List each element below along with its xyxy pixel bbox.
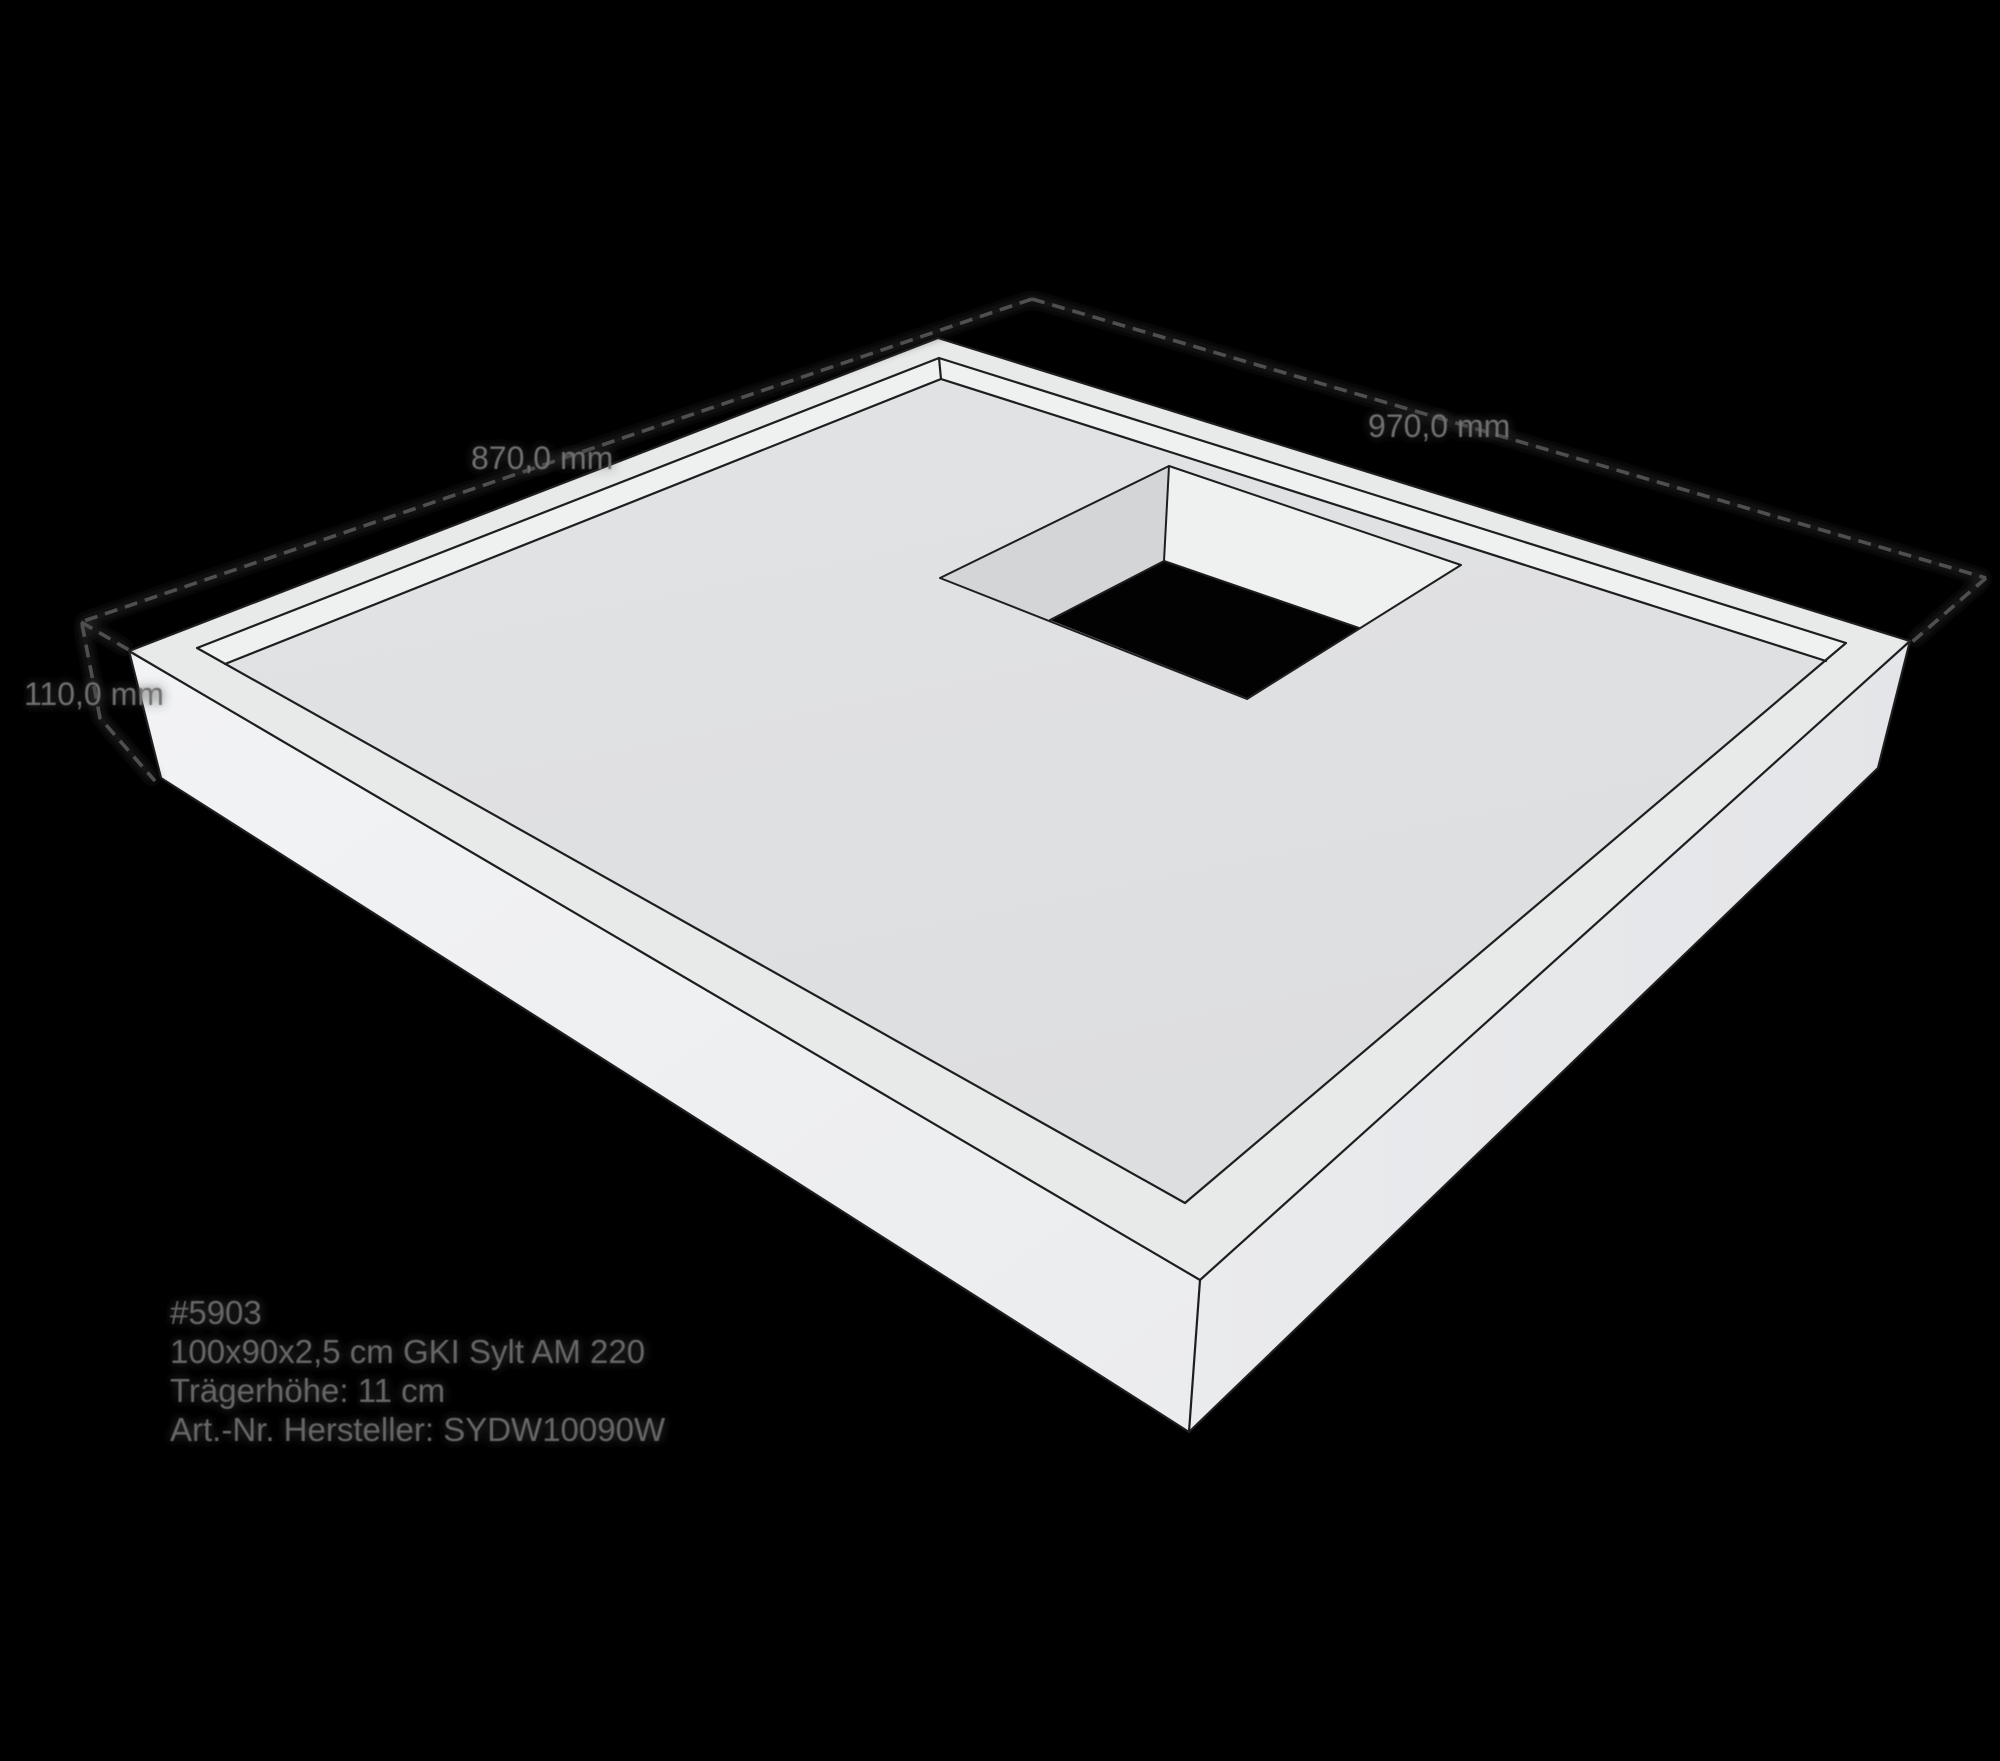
svg-text:Trägerhöhe: 11 cm: Trägerhöhe: 11 cm — [170, 1372, 445, 1409]
svg-text:110,0 mm: 110,0 mm — [24, 676, 164, 712]
svg-text:100x90x2,5 cm GKI Sylt AM 220: 100x90x2,5 cm GKI Sylt AM 220 — [170, 1333, 645, 1370]
svg-text:870,0 mm: 870,0 mm — [471, 440, 613, 476]
svg-text:Art.-Nr. Hersteller: SYDW10090: Art.-Nr. Hersteller: SYDW10090W — [170, 1411, 666, 1448]
svg-text:#5903: #5903 — [170, 1294, 262, 1331]
svg-text:970,0 mm: 970,0 mm — [1368, 408, 1510, 444]
